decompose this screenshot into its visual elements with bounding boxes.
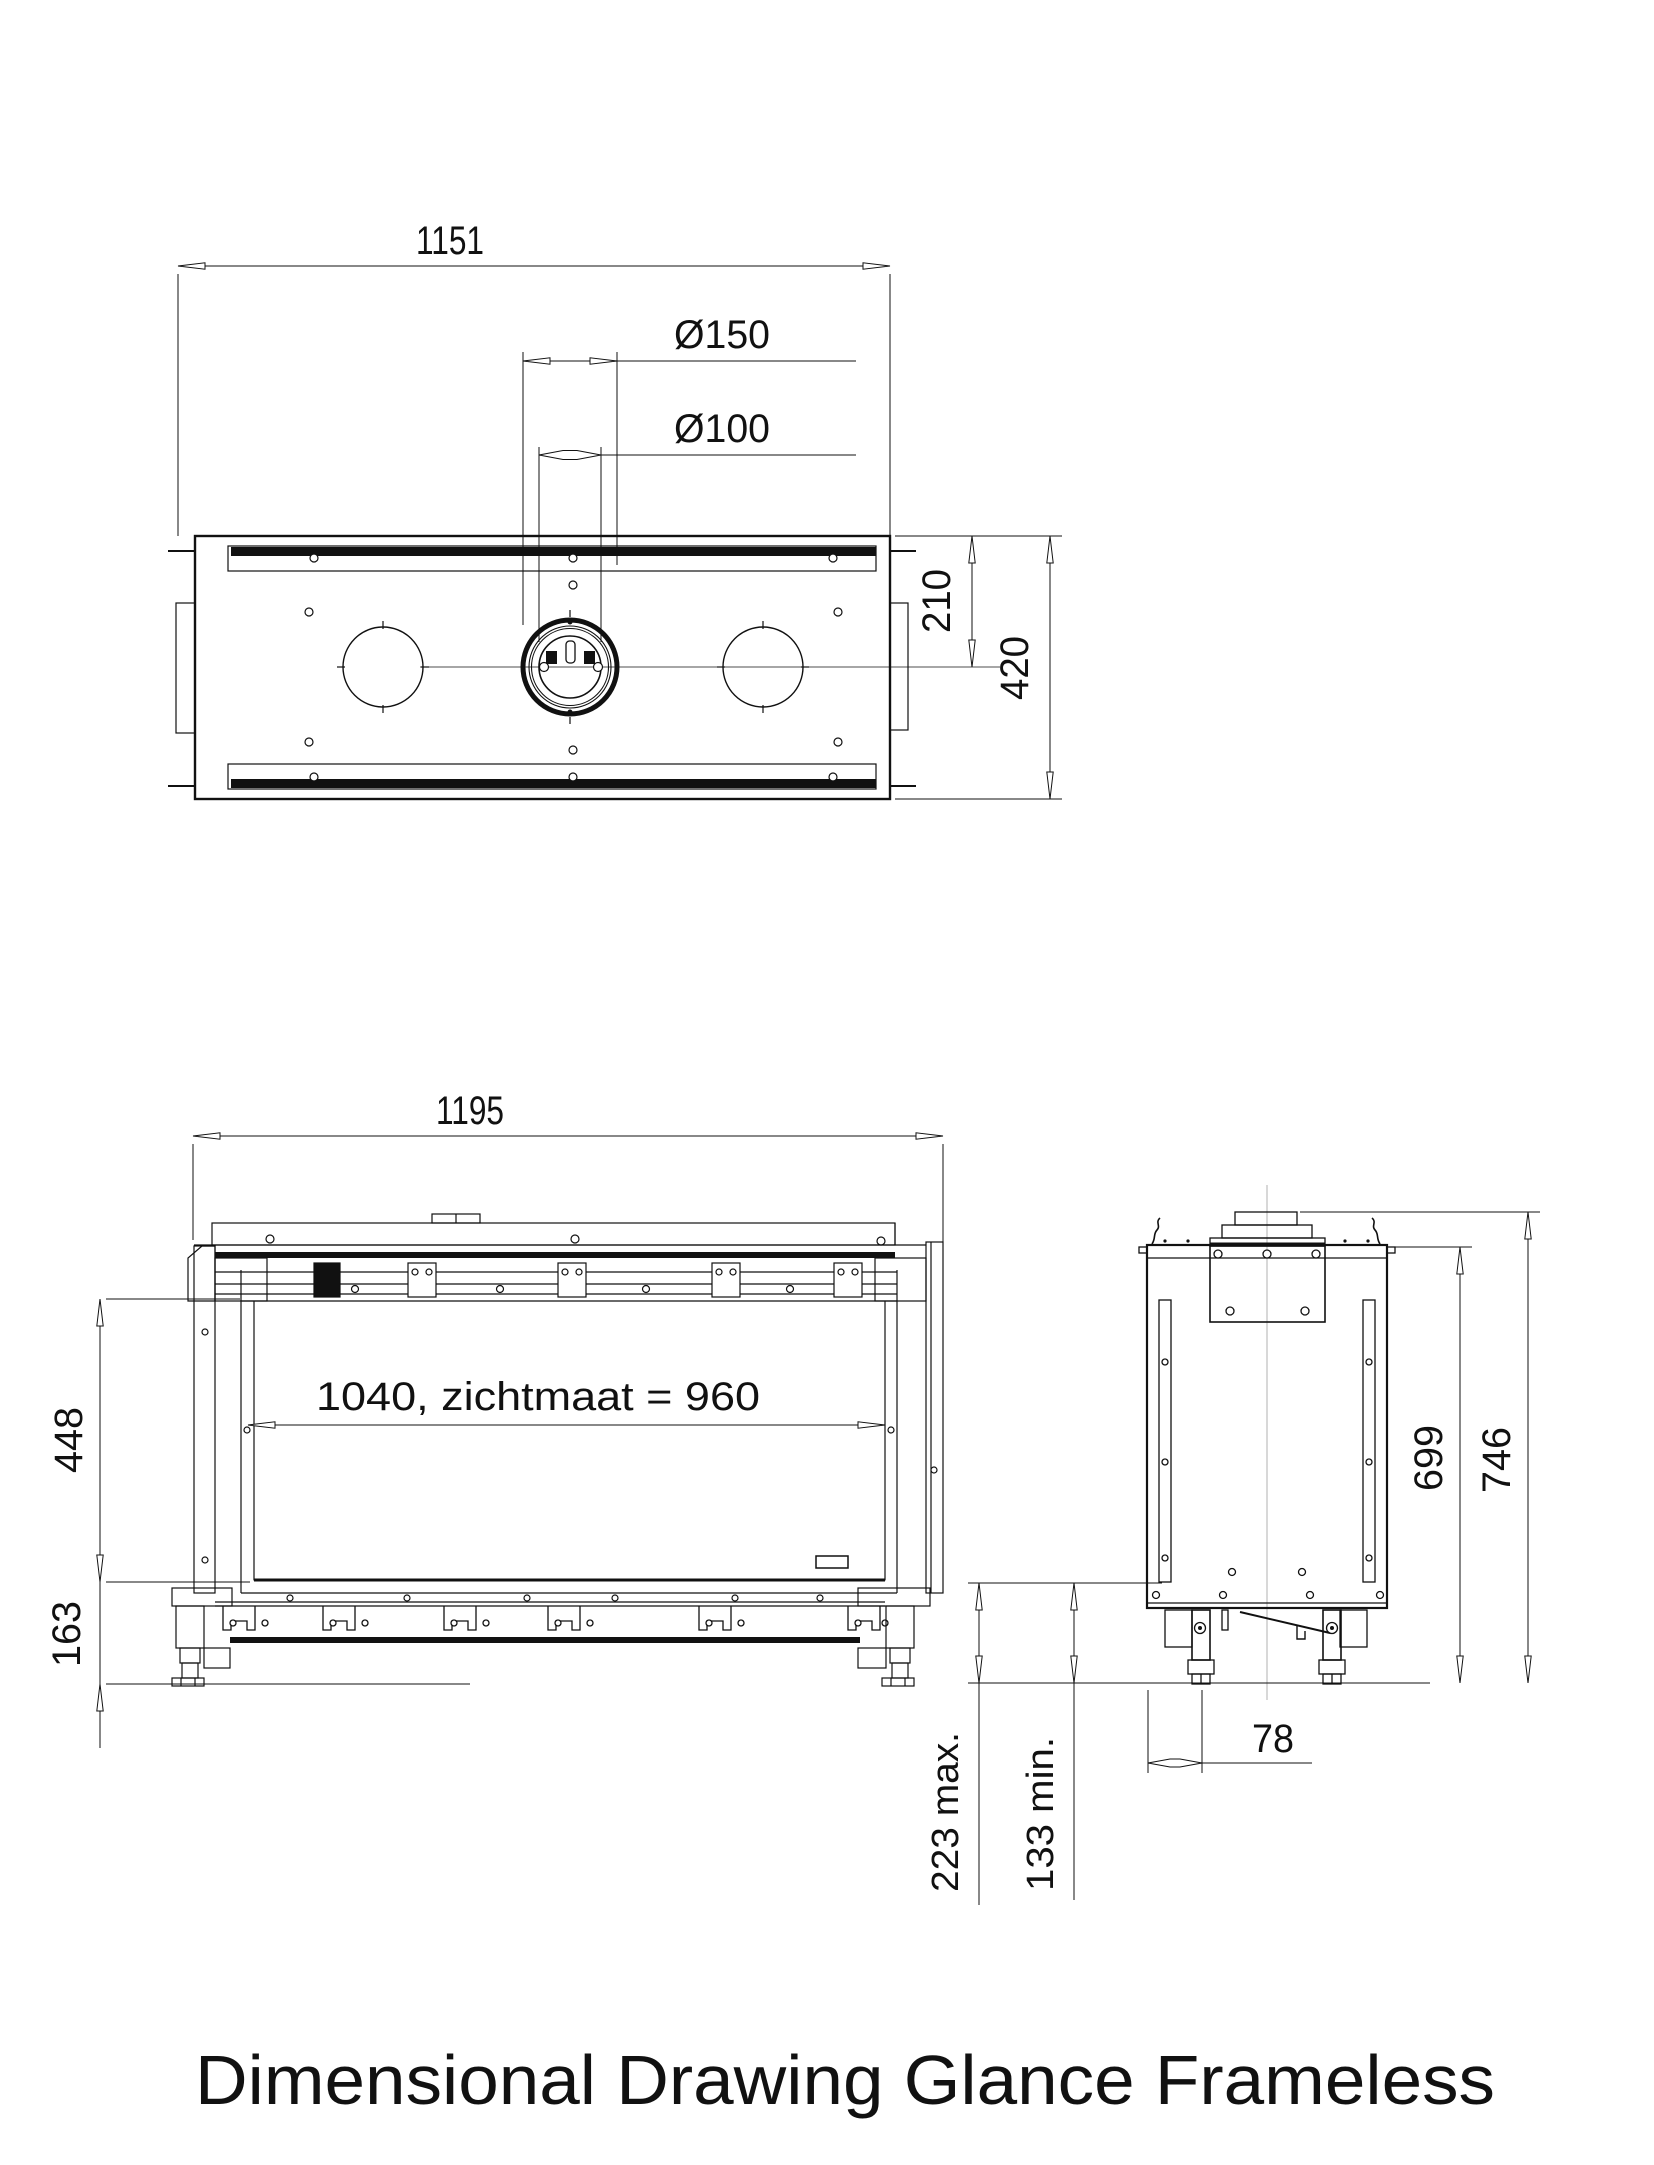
dim-side-overall-height: 746: [1475, 1427, 1519, 1493]
dim-flue-offset: 210: [915, 569, 959, 633]
top-view-dimensions: [178, 266, 1062, 799]
dimensional-drawing-page: 1151 Ø150 Ø100 210 420: [0, 0, 1654, 2165]
dim-front-plinth-height: 163: [45, 1601, 89, 1667]
dim-clearance-max: 223 max.: [925, 1732, 967, 1892]
dim-clearance-min: 133 min.: [1020, 1737, 1062, 1891]
dim-front-overall-width: 1195: [436, 1089, 504, 1133]
front-view-drawing: [172, 1214, 943, 1686]
dim-front-opening-width: 1040, zichtmaat = 960: [316, 1375, 760, 1419]
drawing-title: Dimensional Drawing Glance Frameless: [195, 2041, 1495, 2119]
front-view-dimensions: [100, 1136, 943, 1748]
dimensional-drawing-canvas: 1151 Ø150 Ø100 210 420: [0, 0, 1654, 2165]
dim-front-glass-height: 448: [47, 1407, 91, 1473]
side-view-drawing: [1139, 1185, 1395, 1700]
dim-side-body-height: 699: [1407, 1425, 1451, 1491]
top-view-drawing: [168, 536, 1000, 799]
dim-top-overall-width: 1151: [416, 219, 484, 263]
dim-flue-outer-diameter: Ø150: [674, 313, 770, 357]
dim-top-depth: 420: [993, 636, 1037, 700]
dim-flue-inner-diameter: Ø100: [674, 407, 770, 451]
dim-leg-inset: 78: [1252, 1717, 1294, 1761]
